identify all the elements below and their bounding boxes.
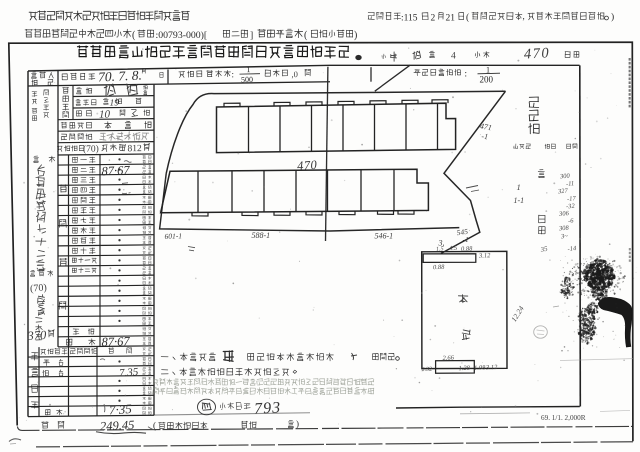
svg-text:500: 500: [241, 75, 253, 84]
svg-text:1: 1: [247, 65, 251, 74]
svg-text:-1: -1: [481, 132, 489, 142]
svg-text:0.88: 0.88: [461, 245, 473, 253]
svg-text:(: (: [153, 420, 156, 430]
svg-text:1: 1: [517, 182, 521, 192]
svg-text:200: 200: [480, 75, 494, 85]
svg-text:4.5: 4.5: [449, 245, 458, 252]
svg-text:87·67: 87·67: [101, 334, 130, 349]
svg-text:470: 470: [524, 45, 551, 62]
svg-text:3~: 3~: [560, 233, 569, 241]
svg-text:793: 793: [254, 399, 282, 417]
svg-text:87·67: 87·67: [101, 163, 130, 178]
svg-text:1-1: 1-1: [514, 196, 525, 205]
svg-text:3.12: 3.12: [485, 364, 498, 372]
svg-text:69. 1/1. 2,000R: 69. 1/1. 2,000R: [541, 414, 586, 422]
svg-text:,0: ,0: [292, 69, 298, 79]
svg-text:(70): (70): [83, 144, 99, 155]
svg-text:601-1: 601-1: [164, 231, 182, 241]
svg-text:308: 308: [558, 225, 570, 233]
svg-text:470: 470: [297, 158, 318, 173]
svg-text::: :: [465, 69, 468, 79]
svg-text:): ): [296, 419, 299, 429]
svg-text:370: 370: [26, 328, 47, 343]
svg-text:2: 2: [431, 14, 436, 24]
svg-text:7·35: 7·35: [109, 401, 133, 417]
svg-text:300: 300: [559, 173, 571, 181]
svg-text:546-1: 546-1: [375, 232, 394, 241]
svg-text:-1: -1: [463, 235, 469, 244]
svg-text:,: ,: [523, 11, 525, 21]
svg-text:70. 7. 8.: 70. 7. 8.: [98, 68, 142, 85]
svg-text::: :: [232, 69, 235, 79]
svg-text:10: 10: [99, 109, 110, 121]
svg-text:]: ]: [250, 30, 253, 41]
svg-text:3.12: 3.12: [478, 252, 491, 260]
svg-text:1.5: 1.5: [436, 246, 444, 252]
svg-text:-14: -14: [567, 245, 577, 253]
svg-text::115: :115: [401, 14, 418, 24]
svg-text:306: 306: [558, 210, 570, 218]
svg-text:1.08: 1.08: [474, 364, 486, 372]
svg-text:2.32: 2.32: [421, 367, 432, 374]
svg-text:327: 327: [557, 188, 569, 196]
svg-text:): ): [354, 30, 357, 41]
svg-text:21: 21: [446, 14, 456, 24]
svg-text::00793-000)[: :00793-000)[: [156, 30, 208, 41]
svg-text:2.66: 2.66: [442, 354, 454, 362]
svg-text:(: (: [466, 12, 469, 23]
svg-text:7.35: 7.35: [119, 366, 140, 380]
svg-text:588-1: 588-1: [252, 231, 271, 240]
svg-text:4: 4: [451, 52, 456, 62]
svg-text:812: 812: [128, 144, 142, 154]
svg-text:-17: -17: [567, 195, 577, 203]
svg-text:(70): (70): [30, 282, 47, 294]
svg-text:249.45: 249.45: [100, 418, 135, 434]
svg-text:1.28: 1.28: [458, 365, 470, 373]
svg-text:): ): [611, 12, 614, 23]
svg-text:0.88: 0.88: [433, 264, 445, 272]
